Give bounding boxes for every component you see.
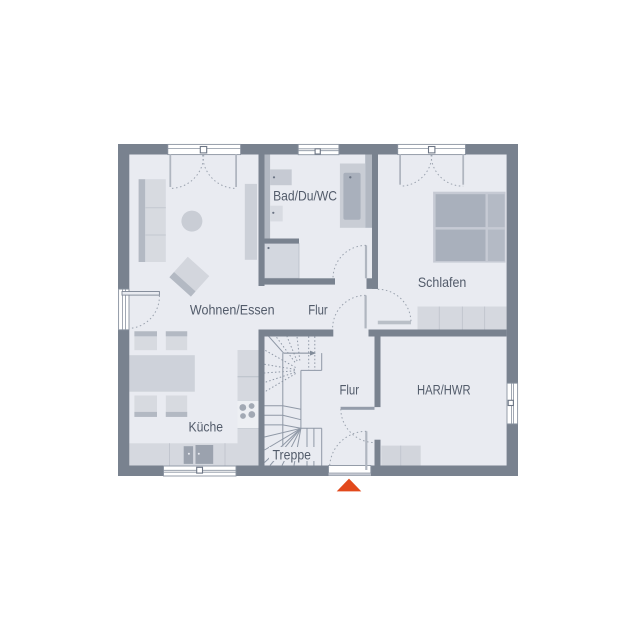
svg-text:HAR/HWR: HAR/HWR <box>417 383 471 398</box>
svg-text:Wohnen/Essen: Wohnen/Essen <box>190 302 275 317</box>
svg-text:Bad/Du/WC: Bad/Du/WC <box>273 189 337 204</box>
svg-text:Flur: Flur <box>340 383 360 398</box>
svg-text:Schlafen: Schlafen <box>418 275 466 290</box>
svg-text:Treppe: Treppe <box>273 448 312 463</box>
svg-text:Flur: Flur <box>308 303 328 318</box>
svg-text:Küche: Küche <box>189 420 224 435</box>
